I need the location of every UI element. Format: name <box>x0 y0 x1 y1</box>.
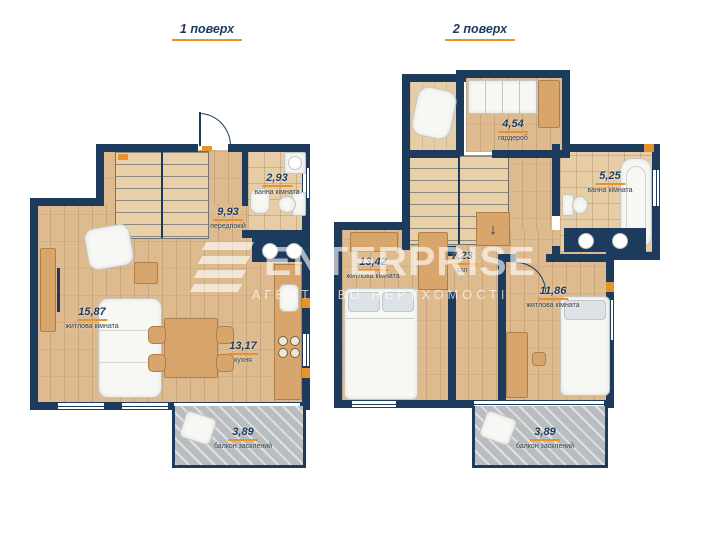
wall <box>98 144 198 152</box>
vanity-sink <box>612 233 628 249</box>
floor1-title: 1 поверх <box>172 22 242 41</box>
wall <box>242 230 310 238</box>
window <box>652 170 660 206</box>
wall <box>228 144 310 152</box>
room-label-wardrobe: 4,54 гардероб <box>498 118 528 142</box>
room-name: кухня <box>234 357 252 364</box>
room-label-bedroom2: 11,86 житлова кімната <box>526 285 579 309</box>
label-underline <box>228 439 258 441</box>
wall <box>456 70 464 156</box>
wall <box>402 150 460 158</box>
room-label-bathroom2: 5,25 ванна кімната <box>587 170 632 194</box>
dining-table <box>164 318 218 378</box>
room-label-balcony2: 3,89 балкон засклений <box>516 426 574 450</box>
closet <box>468 80 538 114</box>
washing-machine-drum <box>288 156 302 170</box>
entrance-door-arc <box>199 113 231 146</box>
wall-accent <box>606 282 614 292</box>
wall <box>546 254 614 262</box>
label-underline <box>262 185 292 187</box>
room-name: передпокій <box>210 223 246 230</box>
side-table <box>134 262 158 284</box>
armchair <box>83 222 136 271</box>
stove-burner <box>290 348 300 358</box>
window <box>352 400 396 408</box>
stove-burner <box>278 348 288 358</box>
floorplan-canvas: 1 поверх 2 поверх <box>0 0 710 552</box>
wall <box>448 292 456 408</box>
label-underline <box>530 439 560 441</box>
stove-burner <box>278 336 288 346</box>
shelf-unit <box>538 80 560 128</box>
room-area: 3,89 <box>534 426 555 438</box>
floor1-stairs-divider <box>161 152 163 238</box>
room-label-hallway: 9,93 передпокій <box>210 206 246 230</box>
label-underline <box>213 219 243 221</box>
room-name: житлова кімната <box>65 323 118 330</box>
chair <box>148 354 166 372</box>
room-area: 3,89 <box>232 426 253 438</box>
tv <box>57 268 60 312</box>
toilet-bowl <box>278 196 296 213</box>
room-name: ванна кімната <box>587 187 632 194</box>
room-name: гардероб <box>498 135 528 142</box>
wall-accent <box>302 368 310 378</box>
wall <box>552 144 560 216</box>
desk <box>506 332 528 398</box>
room-label-balcony1: 3,89 балкон засклений <box>214 426 272 450</box>
vanity-sink <box>578 233 594 249</box>
wall <box>606 252 660 260</box>
watermark-brand: ENTERPRISE <box>264 238 536 285</box>
blanket-fold <box>346 318 414 319</box>
room-name: ванна кімната <box>254 189 299 196</box>
window <box>122 402 168 410</box>
label-underline <box>595 183 625 185</box>
wall <box>30 198 104 206</box>
floor2-title: 2 поверх <box>445 22 515 41</box>
watermark-logo-icon <box>196 238 258 296</box>
room-name: балкон засклений <box>214 443 272 450</box>
room-name: житлова кімната <box>526 302 579 309</box>
label-underline <box>77 319 107 321</box>
room-area: 11,86 <box>540 285 567 297</box>
label-underline <box>538 298 568 300</box>
window <box>302 334 310 366</box>
window <box>58 402 104 410</box>
room-area: 4,54 <box>502 118 523 130</box>
wall <box>30 198 38 410</box>
floor1-stairs-marker <box>118 154 128 160</box>
room-label-kitchen: 13,17 кухня <box>228 340 258 364</box>
wall <box>458 70 570 78</box>
floor2-stairs-divider <box>458 156 460 244</box>
stool <box>532 352 546 366</box>
label-underline <box>498 131 528 133</box>
wall <box>242 150 248 206</box>
vanity-counter <box>564 228 646 252</box>
wall <box>334 222 410 230</box>
room-area: 2,93 <box>266 172 287 184</box>
chair <box>148 326 166 344</box>
room-area: 15,87 <box>78 306 106 318</box>
room-area: 13,17 <box>229 340 257 352</box>
toilet-bowl <box>572 196 588 214</box>
room-area: 9,93 <box>217 206 238 218</box>
tv-cabinet <box>40 248 56 332</box>
room-label-living: 15,87 житлова кімната <box>65 306 118 330</box>
door-threshold-marker <box>202 146 212 151</box>
wall <box>96 144 104 206</box>
wall-accent <box>644 144 654 152</box>
room-label-bathroom1: 2,93 ванна кімната <box>254 172 299 196</box>
watermark-subtitle: АГЕНТСТВО НЕРУХОМОСТІ <box>252 288 509 302</box>
stove-burner <box>290 336 300 346</box>
label-underline <box>228 353 258 355</box>
room-area: 5,25 <box>599 170 620 182</box>
room-name: балкон засклений <box>516 443 574 450</box>
